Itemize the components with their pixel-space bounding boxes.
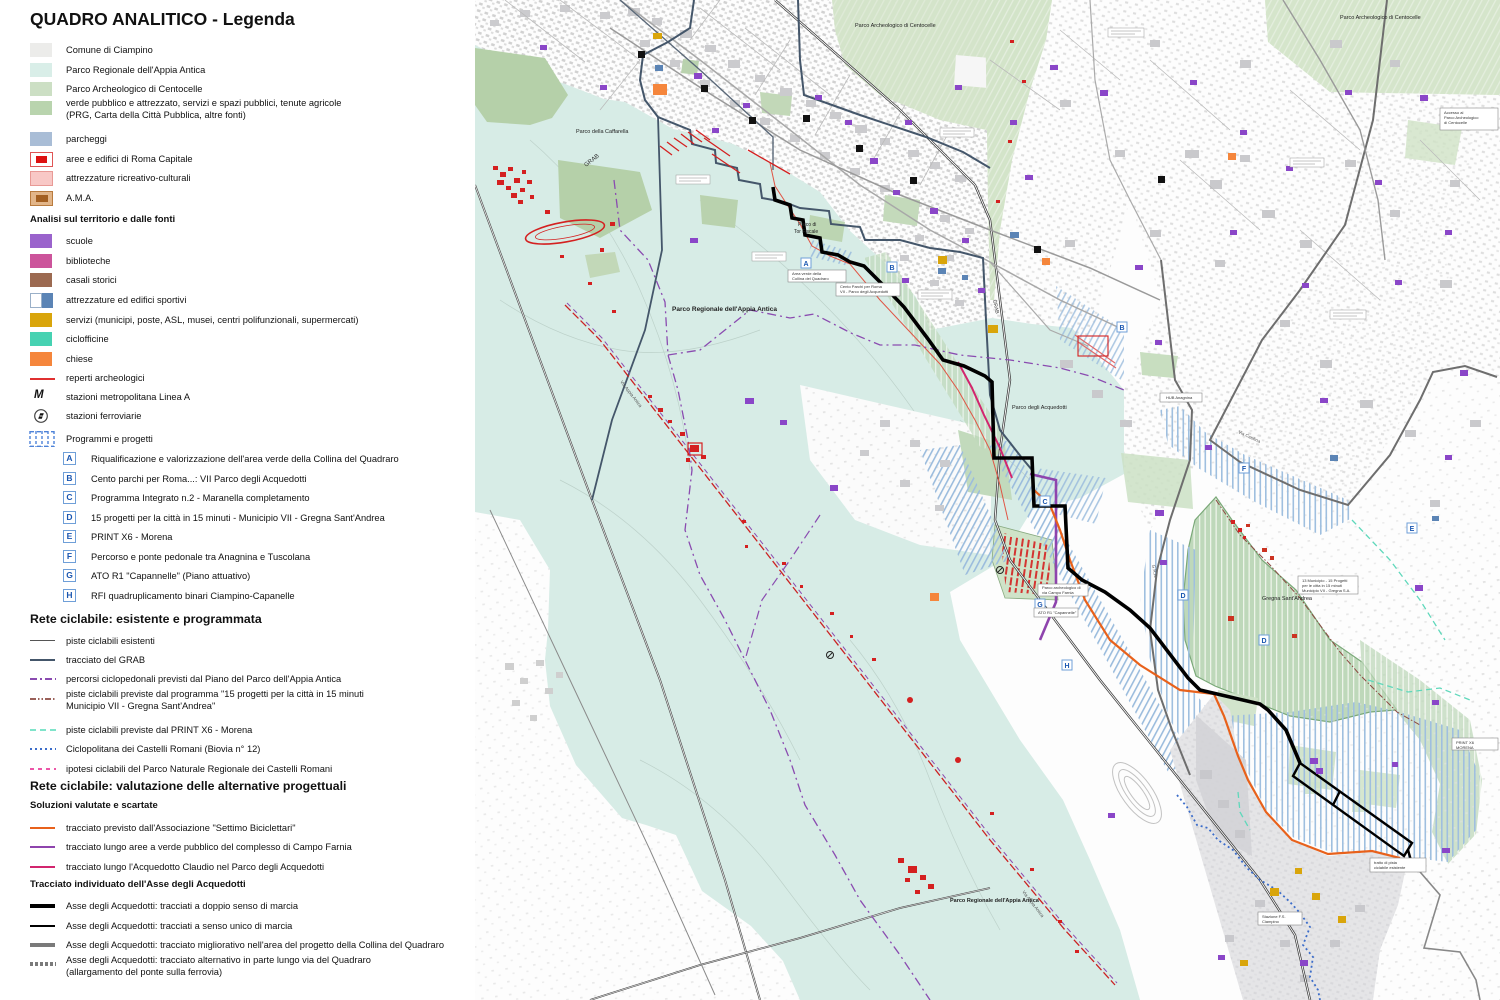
svg-text:Parco Archeologico di Centocel: Parco Archeologico di Centocelle [855,23,936,29]
svg-text:MORENA: MORENA [1456,745,1474,750]
svg-text:ATO R1 "Capannelle": ATO R1 "Capannelle" [1038,610,1077,615]
svg-text:Collina del Quadraro: Collina del Quadraro [792,276,829,281]
svg-text:E: E [1410,526,1415,533]
svg-text:HUB Anagnina: HUB Anagnina [1166,395,1193,400]
svg-text:H: H [1064,663,1069,670]
svg-text:Ciampino: Ciampino [1262,919,1280,924]
svg-text:Parco degli Acquedotti: Parco degli Acquedotti [1012,405,1067,411]
svg-text:D: D [1261,638,1266,645]
svg-text:Parco Archeologico di Centocel: Parco Archeologico di Centocelle [1340,15,1421,21]
svg-text:F: F [1242,466,1247,473]
svg-text:Municipio VII - Gregna S.A.: Municipio VII - Gregna S.A. [1302,588,1350,593]
svg-text:VII - Parco degli Acquedotti: VII - Parco degli Acquedotti [840,289,888,294]
svg-text:Tor Fiscale: Tor Fiscale [794,229,818,235]
svg-text:C: C [1042,499,1047,506]
svg-text:A: A [803,261,808,268]
svg-text:D: D [1180,593,1185,600]
svg-text:Parco di: Parco di [798,222,816,228]
svg-text:Gregna Sant'Andrea: Gregna Sant'Andrea [1262,596,1313,602]
svg-text:B: B [1119,325,1124,332]
svg-text:B: B [889,265,894,272]
svg-text:via Campo Farnia: via Campo Farnia [1042,590,1074,595]
svg-text:Parco della Caffarella: Parco della Caffarella [576,129,629,135]
svg-text:ciclabile esistente: ciclabile esistente [1374,865,1406,870]
svg-text:Parco Regionale dell'Appia Ant: Parco Regionale dell'Appia Antica [672,306,777,313]
svg-text:di Centocelle: di Centocelle [1444,120,1468,125]
